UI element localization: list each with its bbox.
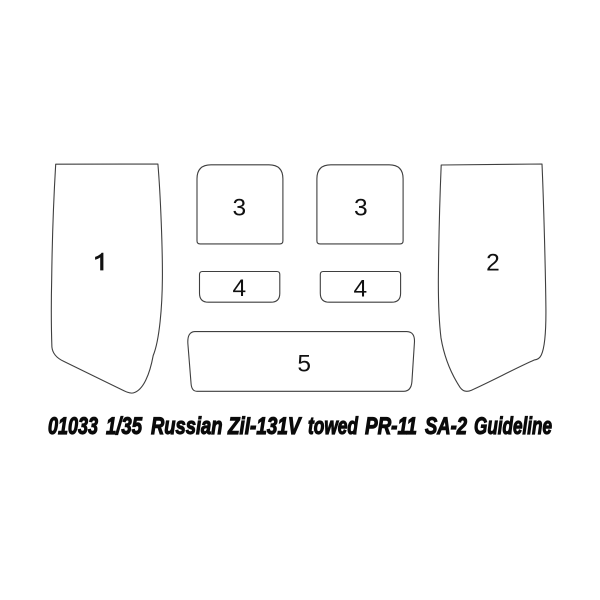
- svg-text:Russian: Russian: [151, 414, 223, 440]
- svg-text:1/35: 1/35: [106, 414, 143, 440]
- svg-text:PR-11: PR-11: [365, 414, 417, 440]
- svg-text:4: 4: [232, 275, 246, 302]
- svg-text:01033: 01033: [48, 414, 98, 440]
- svg-text:ZiI-131V: ZiI-131V: [227, 414, 302, 440]
- svg-text:SA-2: SA-2: [425, 414, 467, 440]
- svg-text:3: 3: [232, 194, 246, 221]
- svg-text:5: 5: [297, 351, 311, 378]
- svg-text:Guideline: Guideline: [474, 414, 552, 440]
- svg-text:2: 2: [486, 249, 500, 276]
- svg-text:3: 3: [354, 194, 368, 221]
- svg-text:towed: towed: [308, 414, 358, 440]
- svg-text:4: 4: [353, 276, 367, 303]
